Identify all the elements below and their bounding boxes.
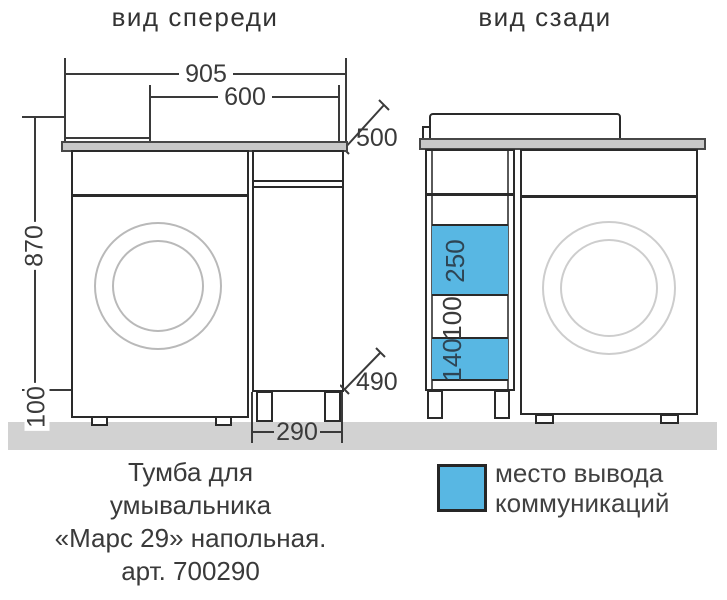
dimension-line-segment	[233, 73, 347, 75]
washing-machine-foot	[215, 416, 232, 426]
dimension-line-segment	[251, 431, 274, 433]
dim-500-label: 500	[356, 126, 398, 151]
dimension-line-segment	[65, 73, 179, 75]
cutout-140-label: 140	[439, 338, 465, 381]
dim-600-label: 600	[218, 85, 272, 110]
back-view-title: вид сзади	[440, 2, 650, 33]
cabinet-leg	[427, 390, 443, 419]
sink-rim-line	[65, 137, 151, 139]
cabinet-top-rail-line	[254, 180, 342, 182]
dimension-line-870	[34, 117, 36, 225]
legend-line-1: место вывода	[495, 458, 669, 488]
caption-line-3: «Марс 29» напольная.	[18, 522, 363, 555]
dimension-line-segment	[272, 96, 340, 98]
product-caption: Тумба для умывальника «Марс 29» напольна…	[18, 456, 363, 588]
floor-band	[8, 422, 717, 450]
cutout-250-label: 250	[442, 239, 468, 282]
drum-door-inner-circle-back	[560, 239, 658, 337]
extension-line	[149, 85, 151, 141]
dimension-line-870	[34, 268, 36, 390]
legend-swatch	[437, 464, 487, 512]
dimension-line-segment	[150, 96, 218, 98]
front-view-title: вид спереди	[75, 2, 315, 33]
cabinet-door-gap-line	[254, 186, 342, 188]
dim-100-label: 100	[25, 383, 50, 431]
product-dimension-drawing: вид спереди 905 600 500	[0, 0, 727, 600]
cabinet-front-outline	[252, 150, 344, 392]
extension-line	[22, 116, 66, 118]
caption-line-1: Тумба для	[18, 456, 363, 489]
washing-machine-top-panel-line	[522, 195, 696, 198]
dim-870-label: 870	[23, 222, 48, 270]
cabinet-shelf-line	[427, 193, 513, 196]
drum-door-inner-circle-front	[112, 240, 204, 332]
dim-490-label: 490	[356, 370, 398, 395]
cabinet-leg	[324, 391, 341, 422]
extension-line	[64, 58, 66, 141]
cutout-100-label: 100	[439, 296, 465, 339]
dimension-line-segment	[320, 431, 343, 433]
washing-machine-foot	[91, 416, 108, 426]
legend-line-2: коммуникаций	[495, 488, 669, 518]
caption-line-2: умывальника	[18, 489, 363, 522]
splashback-back	[429, 113, 621, 141]
washing-machine-foot	[535, 414, 554, 424]
washing-machine-top-panel-line	[73, 194, 247, 197]
caption-line-4: арт. 700290	[18, 555, 363, 588]
dimension-290: 290	[251, 419, 343, 445]
cabinet-leg	[494, 390, 510, 419]
dimension-600: 600	[150, 84, 340, 110]
washing-machine-foot	[660, 414, 679, 424]
dim-290-label: 290	[274, 420, 320, 445]
cabinet-leg	[256, 391, 273, 422]
legend-text: место вывода коммуникаций	[495, 458, 669, 518]
